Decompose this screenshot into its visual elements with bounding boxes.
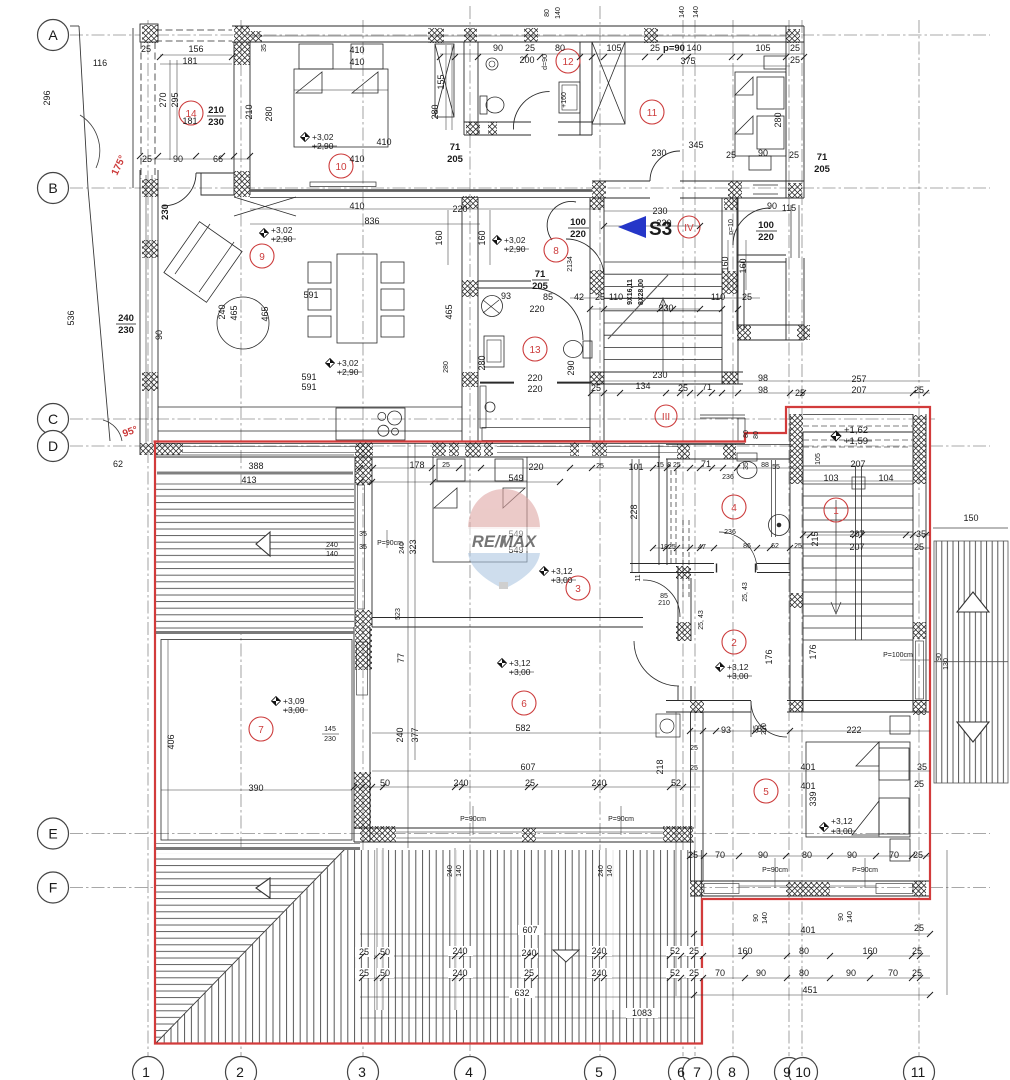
- svg-text:71: 71: [817, 152, 828, 163]
- svg-text:401: 401: [800, 781, 815, 791]
- svg-text:10: 10: [795, 1064, 811, 1080]
- svg-text:410: 410: [349, 154, 364, 164]
- svg-text:D: D: [48, 438, 58, 454]
- svg-text:25: 25: [742, 292, 752, 302]
- svg-text:98: 98: [758, 385, 768, 395]
- svg-text:70: 70: [715, 850, 725, 860]
- svg-text:230: 230: [208, 117, 224, 128]
- svg-text:413: 413: [241, 475, 256, 485]
- svg-text:401: 401: [800, 925, 815, 935]
- svg-text:104: 104: [878, 473, 893, 483]
- svg-text:160: 160: [737, 946, 752, 956]
- svg-text:465: 465: [444, 304, 454, 319]
- svg-text:523: 523: [395, 608, 402, 620]
- svg-text:25: 25: [789, 150, 799, 160]
- svg-text:220: 220: [529, 304, 544, 314]
- svg-text:176: 176: [808, 644, 818, 659]
- svg-text:8: 8: [728, 1064, 736, 1080]
- svg-text:210: 210: [208, 105, 224, 116]
- svg-text:240: 240: [217, 304, 227, 319]
- svg-text:d=90: d=90: [542, 54, 549, 70]
- svg-text:591: 591: [301, 382, 316, 392]
- svg-text:77: 77: [396, 653, 406, 663]
- svg-text:410: 410: [349, 201, 364, 211]
- svg-text:11: 11: [635, 574, 642, 581]
- svg-text:90: 90: [847, 850, 857, 860]
- svg-text:240: 240: [452, 968, 467, 978]
- svg-text:62: 62: [113, 459, 123, 469]
- svg-text:115: 115: [782, 203, 796, 213]
- svg-text:35: 35: [917, 762, 927, 772]
- svg-text:25: 25: [689, 968, 699, 978]
- svg-text:C: C: [48, 411, 58, 427]
- svg-text:35: 35: [359, 544, 367, 551]
- svg-text:90: 90: [173, 154, 183, 164]
- svg-text:+1,59: +1,59: [844, 436, 868, 447]
- svg-text:240: 240: [447, 865, 454, 877]
- svg-text:80: 80: [799, 946, 809, 956]
- svg-text:280: 280: [443, 361, 450, 373]
- svg-text:140: 140: [847, 911, 854, 923]
- svg-text:66: 66: [213, 154, 223, 164]
- svg-text:100: 100: [758, 220, 774, 231]
- svg-text:140: 140: [693, 6, 700, 18]
- svg-text:90: 90: [758, 850, 768, 860]
- svg-text:230: 230: [160, 204, 171, 220]
- svg-text:210: 210: [244, 104, 254, 119]
- svg-text:1: 1: [142, 1064, 150, 1080]
- svg-text:178: 178: [409, 460, 424, 470]
- svg-text:25, 43: 25, 43: [742, 582, 749, 602]
- svg-text:9X16,11: 9X16,11: [627, 279, 634, 305]
- svg-text:228: 228: [629, 504, 639, 519]
- svg-text:5: 5: [595, 1064, 603, 1080]
- svg-text:836: 836: [364, 216, 379, 226]
- svg-text:42: 42: [574, 292, 584, 302]
- svg-text:85: 85: [660, 593, 668, 600]
- svg-text:A: A: [48, 27, 58, 43]
- svg-text:210: 210: [658, 600, 670, 607]
- svg-text:230: 230: [324, 736, 336, 743]
- svg-text:130: 130: [943, 658, 950, 670]
- svg-text:3: 3: [575, 584, 581, 595]
- svg-text:80: 80: [753, 431, 760, 439]
- svg-text:35: 35: [359, 531, 367, 538]
- svg-text:110: 110: [711, 292, 725, 302]
- svg-text:200: 200: [519, 55, 534, 65]
- svg-text:90: 90: [838, 913, 845, 921]
- svg-text:270: 270: [158, 92, 168, 107]
- svg-text:25: 25: [794, 543, 802, 550]
- svg-text:160: 160: [862, 946, 877, 956]
- svg-text:+160: +160: [561, 92, 568, 108]
- svg-text:9: 9: [783, 1064, 791, 1080]
- svg-text:25: 25: [726, 150, 736, 160]
- svg-text:P=90cm: P=90cm: [762, 867, 788, 874]
- svg-text:90: 90: [493, 43, 503, 53]
- svg-text:207: 207: [850, 459, 865, 469]
- svg-text:25: 25: [442, 462, 450, 469]
- svg-text:410: 410: [349, 57, 364, 67]
- svg-text:F: F: [49, 880, 58, 896]
- svg-text:P=90cm: P=90cm: [608, 816, 634, 823]
- svg-text:230: 230: [652, 206, 667, 216]
- svg-text:90: 90: [758, 148, 768, 158]
- svg-text:160: 160: [477, 230, 487, 245]
- svg-text:236: 236: [722, 474, 734, 481]
- svg-text:140: 140: [326, 551, 338, 558]
- svg-text:607: 607: [522, 925, 537, 935]
- svg-text:25: 25: [525, 43, 535, 53]
- svg-text:377: 377: [410, 727, 420, 742]
- svg-text:230: 230: [652, 370, 667, 380]
- svg-text:103: 103: [823, 473, 838, 483]
- svg-text:25: 25: [690, 765, 698, 772]
- svg-text:4: 4: [731, 503, 737, 514]
- svg-text:140: 140: [456, 865, 463, 877]
- svg-text:536: 536: [66, 310, 76, 325]
- svg-text:591: 591: [301, 372, 316, 382]
- svg-text:25, 43: 25, 43: [698, 610, 705, 630]
- svg-text:210: 210: [761, 723, 768, 735]
- svg-text:220: 220: [527, 384, 542, 394]
- svg-text:390: 390: [248, 783, 263, 793]
- svg-text:465: 465: [260, 306, 270, 321]
- svg-text:1083: 1083: [632, 1008, 652, 1018]
- svg-text:88: 88: [761, 462, 769, 469]
- svg-text:632: 632: [514, 988, 529, 998]
- svg-text:401: 401: [800, 762, 815, 772]
- svg-text:p=90: p=90: [663, 43, 685, 54]
- svg-text:+3,12: +3,12: [831, 816, 853, 826]
- svg-text:1825: 1825: [660, 544, 676, 551]
- svg-text:323: 323: [408, 539, 418, 554]
- svg-text:220: 220: [528, 462, 543, 472]
- svg-text:P=90cm: P=90cm: [460, 816, 486, 823]
- svg-text:80: 80: [555, 43, 565, 53]
- svg-text:25: 25: [913, 850, 923, 860]
- svg-text:25: 25: [650, 43, 660, 53]
- svg-text:296: 296: [42, 90, 52, 105]
- svg-text:70: 70: [889, 850, 899, 860]
- svg-text:35: 35: [743, 462, 750, 470]
- svg-text:388: 388: [248, 461, 263, 471]
- svg-text:181: 181: [182, 56, 197, 66]
- svg-text:290: 290: [566, 360, 576, 375]
- svg-text:240: 240: [598, 865, 605, 877]
- svg-text:410: 410: [376, 137, 391, 147]
- svg-text:1: 1: [833, 506, 839, 517]
- svg-text:345: 345: [688, 140, 703, 150]
- svg-text:6: 6: [521, 699, 527, 710]
- svg-text:25: 25: [678, 383, 688, 393]
- svg-text:11: 11: [647, 108, 658, 119]
- svg-text:+1,62: +1,62: [844, 425, 868, 436]
- svg-text:339: 339: [808, 791, 818, 806]
- svg-text:71: 71: [450, 142, 461, 153]
- svg-text:2: 2: [731, 638, 737, 649]
- svg-text:218: 218: [655, 759, 665, 774]
- svg-text:13: 13: [529, 345, 541, 356]
- svg-text:90: 90: [154, 330, 164, 340]
- svg-text:5: 5: [763, 787, 769, 798]
- svg-text:10: 10: [335, 162, 347, 173]
- svg-text:140: 140: [607, 865, 614, 877]
- svg-text:240: 240: [395, 727, 405, 742]
- svg-text:25: 25: [914, 923, 924, 933]
- svg-text:280: 280: [477, 355, 487, 370]
- svg-text:25: 25: [595, 292, 605, 302]
- svg-text:62: 62: [771, 543, 779, 550]
- svg-text:80: 80: [802, 850, 812, 860]
- svg-text:100: 100: [570, 217, 586, 228]
- svg-text:140: 140: [679, 6, 686, 18]
- svg-text:240: 240: [118, 313, 134, 324]
- svg-text:105: 105: [815, 453, 822, 465]
- svg-text:93: 93: [501, 291, 511, 301]
- svg-text:90: 90: [936, 653, 943, 661]
- svg-text:116: 116: [93, 58, 107, 68]
- svg-text:7: 7: [258, 725, 264, 736]
- svg-text:11: 11: [911, 1064, 926, 1080]
- svg-text:25: 25: [790, 43, 800, 53]
- svg-text:90: 90: [753, 914, 760, 922]
- svg-text:220: 220: [570, 229, 586, 240]
- svg-text:607: 607: [520, 762, 535, 772]
- svg-text:25: 25: [690, 745, 698, 752]
- svg-text:7: 7: [693, 1064, 701, 1080]
- svg-text:220: 220: [527, 373, 542, 383]
- svg-text:93: 93: [721, 725, 731, 735]
- svg-text:70: 70: [888, 968, 898, 978]
- svg-text:176: 176: [764, 649, 774, 664]
- svg-text:160: 160: [434, 230, 444, 245]
- svg-text:140: 140: [686, 43, 701, 53]
- svg-text:591: 591: [303, 290, 318, 300]
- svg-text:70: 70: [715, 968, 725, 978]
- svg-text:145: 145: [324, 726, 336, 733]
- svg-text:220: 220: [758, 232, 774, 243]
- svg-text:406: 406: [166, 734, 176, 749]
- svg-text:205: 205: [532, 281, 549, 292]
- svg-text:80: 80: [544, 9, 551, 17]
- svg-text:582: 582: [515, 723, 530, 733]
- svg-text:465: 465: [229, 305, 239, 320]
- svg-text:71: 71: [702, 382, 712, 392]
- svg-text:P=90cm: P=90cm: [377, 540, 403, 547]
- svg-text:280: 280: [264, 106, 274, 121]
- svg-text:207: 207: [851, 385, 866, 395]
- svg-text:6: 6: [677, 1064, 685, 1080]
- svg-text:P=100cm: P=100cm: [883, 652, 913, 659]
- svg-text:207: 207: [849, 542, 864, 552]
- svg-text:295: 295: [170, 92, 180, 107]
- svg-text:25: 25: [689, 946, 699, 956]
- svg-text:280: 280: [773, 112, 783, 127]
- svg-text:86: 86: [743, 543, 751, 550]
- svg-text:25: 25: [914, 779, 924, 789]
- svg-text:220: 220: [452, 204, 467, 214]
- svg-text:85: 85: [543, 292, 553, 302]
- svg-text:25: 25: [596, 463, 604, 470]
- svg-text:549: 549: [508, 473, 523, 483]
- svg-text:8: 8: [553, 246, 559, 257]
- svg-text:9: 9: [259, 252, 265, 263]
- svg-text:25: 25: [359, 947, 369, 957]
- svg-text:160: 160: [720, 256, 730, 271]
- svg-text:280: 280: [430, 104, 440, 119]
- svg-text:p=10: p=10: [728, 219, 735, 235]
- svg-text:181: 181: [182, 116, 197, 126]
- svg-text:2: 2: [236, 1064, 244, 1080]
- svg-text:35: 35: [916, 529, 926, 539]
- svg-text:25: 25: [142, 154, 152, 164]
- svg-text:134: 134: [635, 381, 650, 391]
- svg-text:257: 257: [851, 374, 866, 384]
- svg-text:222: 222: [846, 725, 861, 735]
- svg-text:230: 230: [656, 218, 671, 228]
- svg-text:52: 52: [671, 778, 681, 788]
- svg-text:230: 230: [118, 325, 134, 336]
- svg-text:35: 35: [261, 44, 268, 52]
- svg-text:155: 155: [436, 74, 446, 89]
- svg-text:25: 25: [914, 542, 924, 552]
- svg-text:15: 15: [656, 462, 664, 469]
- svg-text:140: 140: [555, 7, 562, 19]
- svg-text:B: B: [48, 180, 57, 196]
- svg-text:207: 207: [849, 529, 864, 539]
- svg-text:236: 236: [724, 529, 736, 536]
- svg-text:8X28,00: 8X28,00: [638, 279, 645, 305]
- svg-text:240: 240: [326, 542, 338, 549]
- svg-text:101: 101: [628, 462, 643, 472]
- svg-text:E: E: [48, 826, 57, 842]
- svg-text:156: 156: [188, 44, 203, 54]
- svg-text:90: 90: [756, 968, 766, 978]
- svg-text:50: 50: [380, 947, 390, 957]
- svg-text:3: 3: [358, 1064, 366, 1080]
- svg-text:12: 12: [562, 57, 574, 68]
- svg-text:55: 55: [772, 464, 780, 471]
- svg-text:2134: 2134: [567, 256, 574, 272]
- svg-text:47: 47: [698, 544, 706, 551]
- svg-text:71: 71: [535, 269, 546, 280]
- svg-text:25: 25: [688, 850, 698, 860]
- svg-text:80: 80: [799, 968, 809, 978]
- svg-text:98: 98: [758, 373, 768, 383]
- svg-text:P=90cm: P=90cm: [852, 867, 878, 874]
- svg-text:III: III: [662, 412, 670, 423]
- svg-text:110: 110: [609, 292, 623, 302]
- svg-text:160: 160: [738, 258, 748, 273]
- svg-text:150: 150: [963, 513, 978, 523]
- svg-text:205: 205: [814, 164, 831, 175]
- svg-text:80: 80: [743, 430, 750, 438]
- svg-text:230: 230: [651, 148, 666, 158]
- svg-text:105: 105: [606, 43, 621, 53]
- svg-text:71: 71: [701, 459, 711, 469]
- svg-text:140: 140: [762, 912, 769, 924]
- svg-text:25: 25: [525, 778, 535, 788]
- svg-text:240: 240: [452, 946, 467, 956]
- svg-text:50: 50: [380, 778, 390, 788]
- svg-text:25: 25: [141, 44, 151, 54]
- svg-text:410: 410: [349, 45, 364, 55]
- svg-text:IV: IV: [684, 223, 694, 234]
- svg-text:90: 90: [846, 968, 856, 978]
- svg-text:25: 25: [790, 55, 800, 65]
- svg-text:4: 4: [465, 1064, 473, 1080]
- svg-text:205: 205: [447, 154, 464, 165]
- svg-text:451: 451: [802, 985, 817, 995]
- svg-text:105: 105: [755, 43, 770, 53]
- svg-text:90: 90: [767, 201, 777, 211]
